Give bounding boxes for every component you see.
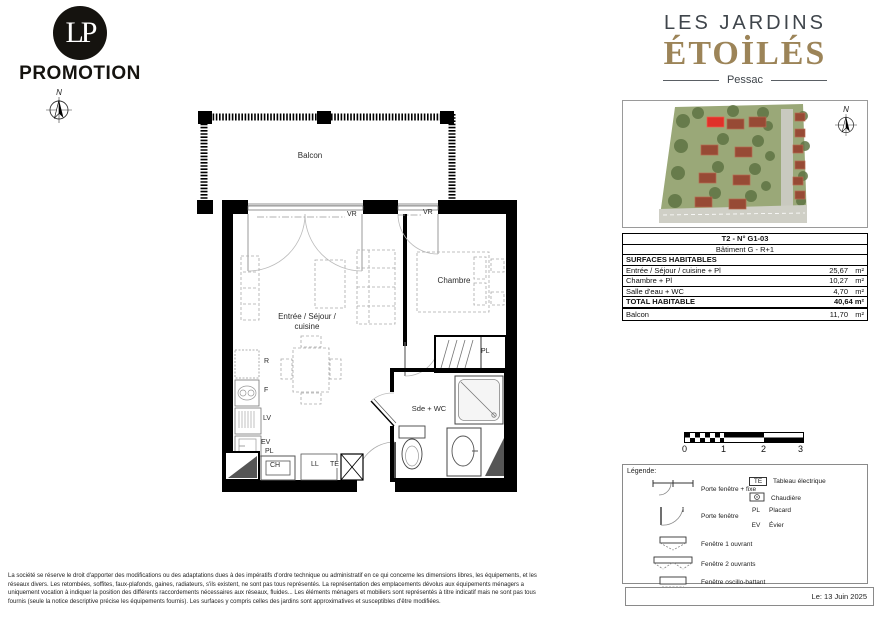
table-row: Entrée / Séjour / cuisine + Pl 25,67 m² xyxy=(623,266,867,277)
bathroom-label: Sde + WC xyxy=(397,404,461,413)
balcony-railing xyxy=(203,114,453,214)
floor-plan-drawing xyxy=(197,110,519,495)
rule-left xyxy=(663,80,719,81)
scale-bar: 0 1 2 3 xyxy=(684,432,804,454)
scale-segment-1 xyxy=(685,433,724,442)
electrical-panel-box xyxy=(341,454,363,480)
living-room-label-line1: Entrée / Séjour / xyxy=(247,312,367,321)
oven-label: F xyxy=(264,387,268,394)
photo-compass-icon xyxy=(835,114,857,136)
fenetre-2-ouvrants-icon xyxy=(651,555,695,573)
electrical-label: TE xyxy=(330,461,339,468)
project-name-line1: LES JARDINS xyxy=(622,12,868,35)
fenetre-1-ouvrant-icon xyxy=(651,535,695,553)
logo-monogram: LP xyxy=(65,18,94,48)
shutter-label-living: VR xyxy=(347,211,357,218)
scale-bar-graphic xyxy=(684,432,804,443)
closet-outline xyxy=(435,336,506,372)
legend-item: Fenêtre 2 ouvrants xyxy=(651,555,756,573)
legend-item: Chaudière xyxy=(749,492,801,504)
porte-fenetre-icon xyxy=(651,505,695,527)
scale-segment-3 xyxy=(764,433,803,442)
rule-right xyxy=(771,80,827,81)
north-label: N xyxy=(44,88,74,97)
placard-symbol: PL xyxy=(749,507,763,514)
city-label: Pessac xyxy=(727,74,763,86)
legend-item: PL Placard xyxy=(749,507,791,514)
sink-label: EV xyxy=(261,439,270,446)
compass-icon xyxy=(46,97,72,123)
wall-fill-wedge xyxy=(485,438,504,476)
developer-logo: LP PROMOTION xyxy=(12,6,148,85)
closet-label-bedroom: PL xyxy=(481,348,490,355)
surface-table: T2 - N° G1-03 Bâtiment G - R+1 SURFACES … xyxy=(622,233,868,308)
legend-title: Légende: xyxy=(627,468,656,475)
dishwasher-icon xyxy=(235,408,261,434)
building-title: Bâtiment G - R+1 xyxy=(623,245,867,256)
unit-title: T2 - N° G1-03 xyxy=(623,234,867,245)
tableau-electrique-symbol: TE xyxy=(749,477,767,486)
bedroom-label: Chambre xyxy=(419,276,489,285)
city-row: Pessac xyxy=(622,74,868,86)
logo-text: PROMOTION xyxy=(12,63,148,85)
shutter-lines xyxy=(257,215,421,217)
floor-plan-sheet: LP PROMOTION N xyxy=(0,0,876,620)
shutter-label-bedroom: VR xyxy=(423,209,433,216)
table-row: Chambre + Pl 10,27 m² xyxy=(623,276,867,287)
boiler-label: CH xyxy=(270,462,280,469)
corner-duct xyxy=(225,452,259,480)
chaudiere-icon xyxy=(749,492,765,504)
photo-compass: N xyxy=(831,105,861,141)
cooktop-icon xyxy=(235,380,259,406)
fridge-label: R xyxy=(264,358,269,365)
washbasin-icon xyxy=(447,428,481,476)
legend-item: Fenêtre 1 ouvrant xyxy=(651,535,752,553)
compass-rose: N xyxy=(44,88,74,128)
fridge-box xyxy=(235,350,259,378)
dishwasher-label: LV xyxy=(263,415,271,422)
closet-label-kitchen: PL xyxy=(265,448,274,455)
legend-item: Porte fenêtre xyxy=(651,505,739,527)
scale-segment-2 xyxy=(724,433,763,442)
porte-fenetre-fixe-icon xyxy=(651,479,695,499)
aerial-photo: N xyxy=(622,100,868,228)
legend-item: TE Tableau électrique xyxy=(749,477,826,486)
legend-item: EV Évier xyxy=(749,522,784,529)
legal-disclaimer: La société se réserve le droit d'apporte… xyxy=(8,572,548,607)
shower-icon xyxy=(455,376,503,424)
photo-north-label: N xyxy=(831,105,861,114)
date-box: Le: 13 Juin 2025 xyxy=(625,587,874,606)
legend-item: Porte fenêtre + fixe xyxy=(651,479,756,499)
living-room-label-line2: cuisine xyxy=(247,322,367,331)
project-title: LES JARDINS ÉTOİLÉS Pessac xyxy=(622,12,868,86)
wc-icon xyxy=(399,426,425,469)
balcony-surface-row: Balcon 11,70 m² xyxy=(622,308,868,321)
section-header: SURFACES HABITABLES xyxy=(623,255,867,266)
project-name-line2: ÉTOİLÉS xyxy=(622,35,868,72)
legend-box: Légende: Porte fenêtre + fixe Porte fenê… xyxy=(622,464,868,584)
lp-logo-icon: LP xyxy=(53,6,107,60)
balcony-label: Balcon xyxy=(275,151,345,160)
scale-ticks: 0 1 2 3 xyxy=(684,443,804,454)
evier-symbol: EV xyxy=(749,522,763,529)
total-row: TOTAL HABITABLE 40,64 m² xyxy=(623,297,867,307)
washer-label: LL xyxy=(311,461,319,468)
floor-plan: Balcon VR VR Entrée / Séjour / cuisine C… xyxy=(197,110,519,495)
table-row: Salle d'eau + WC 4,70 m² xyxy=(623,287,867,298)
window-glazing xyxy=(248,203,438,210)
